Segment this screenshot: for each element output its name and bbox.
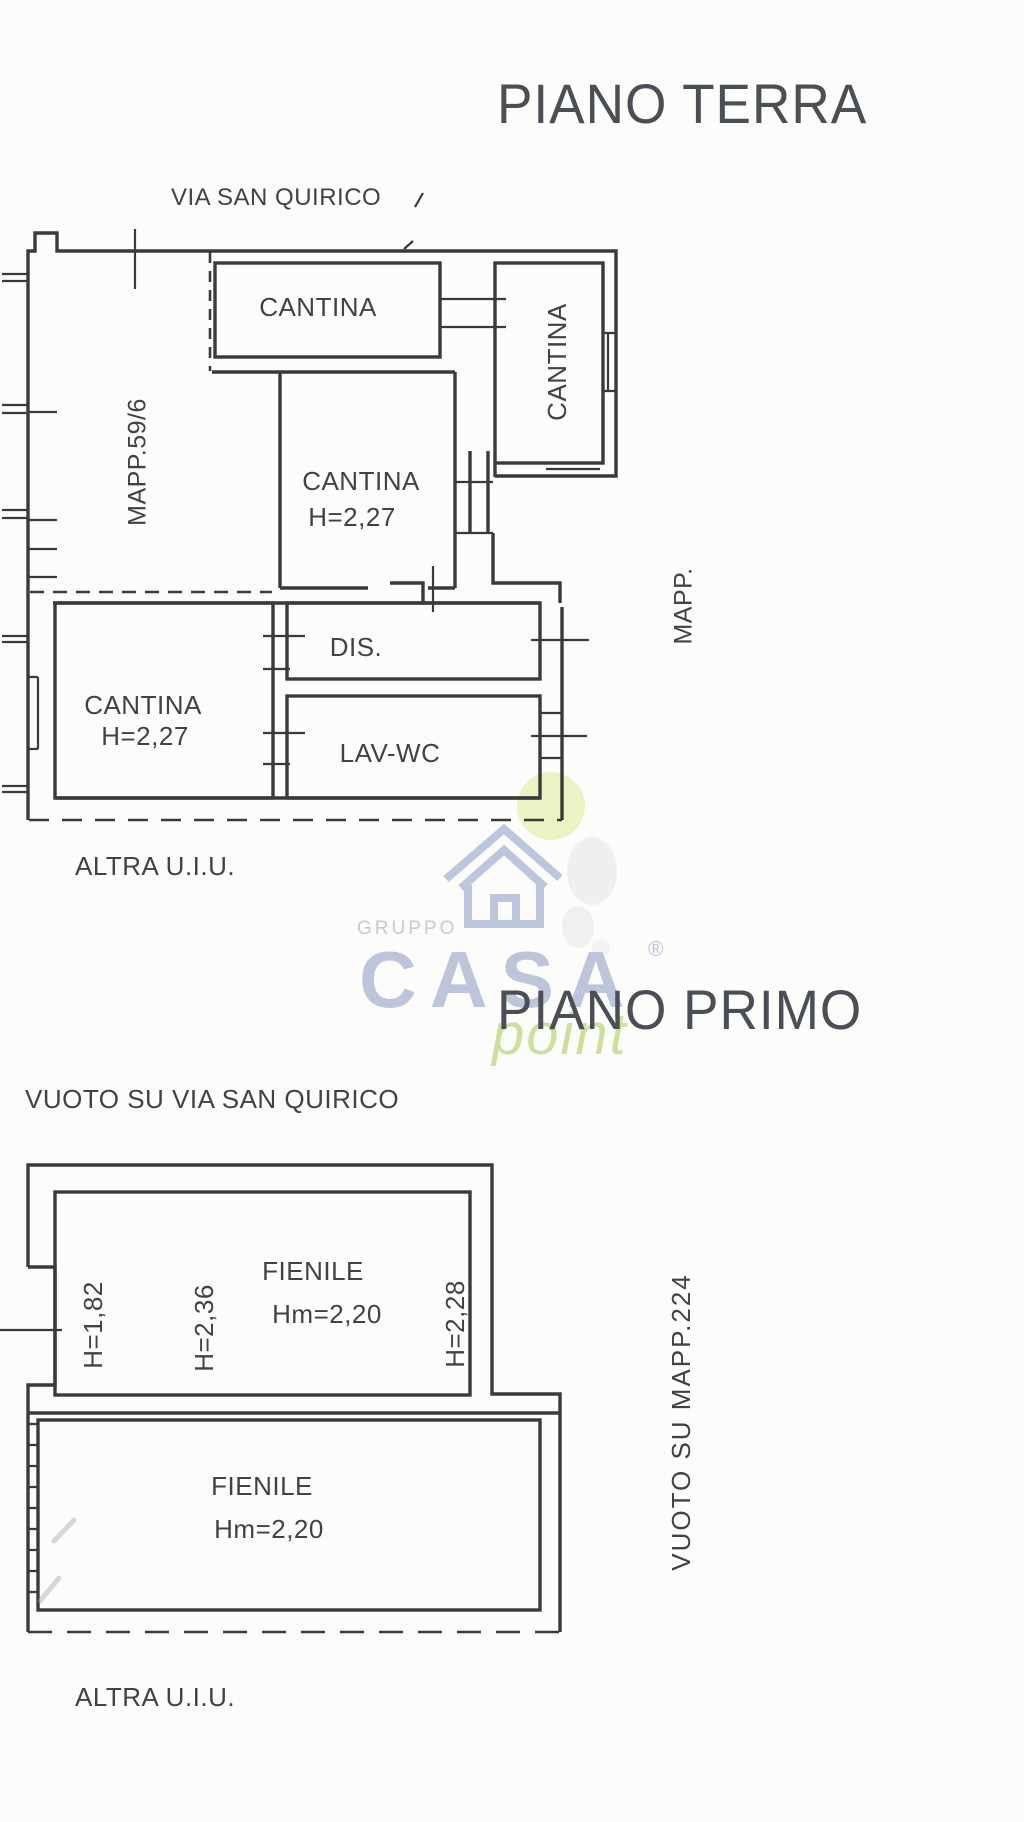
wall-height-right: H=2,28	[442, 1280, 468, 1368]
street-label: VIA SAN QUIRICO	[171, 186, 381, 210]
room-label-cantina-middle: CANTINA	[302, 468, 420, 494]
room-fienile-top	[55, 1192, 470, 1395]
parcel-label-left: MAPP.59/6	[126, 398, 151, 526]
room-label-cantina-left: CANTINA	[84, 692, 202, 718]
first-floor-plan	[0, 1165, 560, 1632]
other-unit-label-ground: ALTRA U.I.U.	[75, 853, 235, 879]
parcel-label-right: MAPP.	[672, 567, 697, 644]
page: { "ground_floor": { "title": "PIANO TERR…	[0, 0, 1024, 1822]
other-unit-label-first: ALTRA U.I.U.	[75, 1684, 235, 1710]
room-height-fienile-bottom: Hm=2,20	[214, 1516, 324, 1542]
room-label-lav-wc: LAV-WC	[340, 740, 441, 766]
ground-floor-title: PIANO TERRA	[497, 76, 867, 132]
room-height-cantina-left: H=2,27	[101, 723, 189, 749]
room-label-dis: DIS.	[330, 634, 383, 660]
void-street-label: VUOTO SU VIA SAN QUIRICO	[25, 1086, 399, 1112]
void-parcel-label: VUOTO SU MAPP.224	[668, 1273, 694, 1570]
wall-height-middle: H=2,36	[191, 1284, 217, 1372]
first-floor-title: PIANO PRIMO	[497, 982, 862, 1038]
wall-height-left: H=1,82	[80, 1281, 106, 1369]
floor-plan-linework	[0, 0, 1024, 1822]
room-label-fienile-top: FIENILE	[262, 1258, 364, 1284]
room-height-cantina-middle: H=2,27	[308, 504, 396, 530]
room-label-cantina-top: CANTINA	[259, 294, 377, 320]
room-height-fienile-top: Hm=2,20	[272, 1301, 382, 1327]
room-label-cantina-right: CANTINA	[544, 303, 570, 421]
room-dis	[287, 603, 540, 679]
room-label-fienile-bottom: FIENILE	[211, 1473, 313, 1499]
